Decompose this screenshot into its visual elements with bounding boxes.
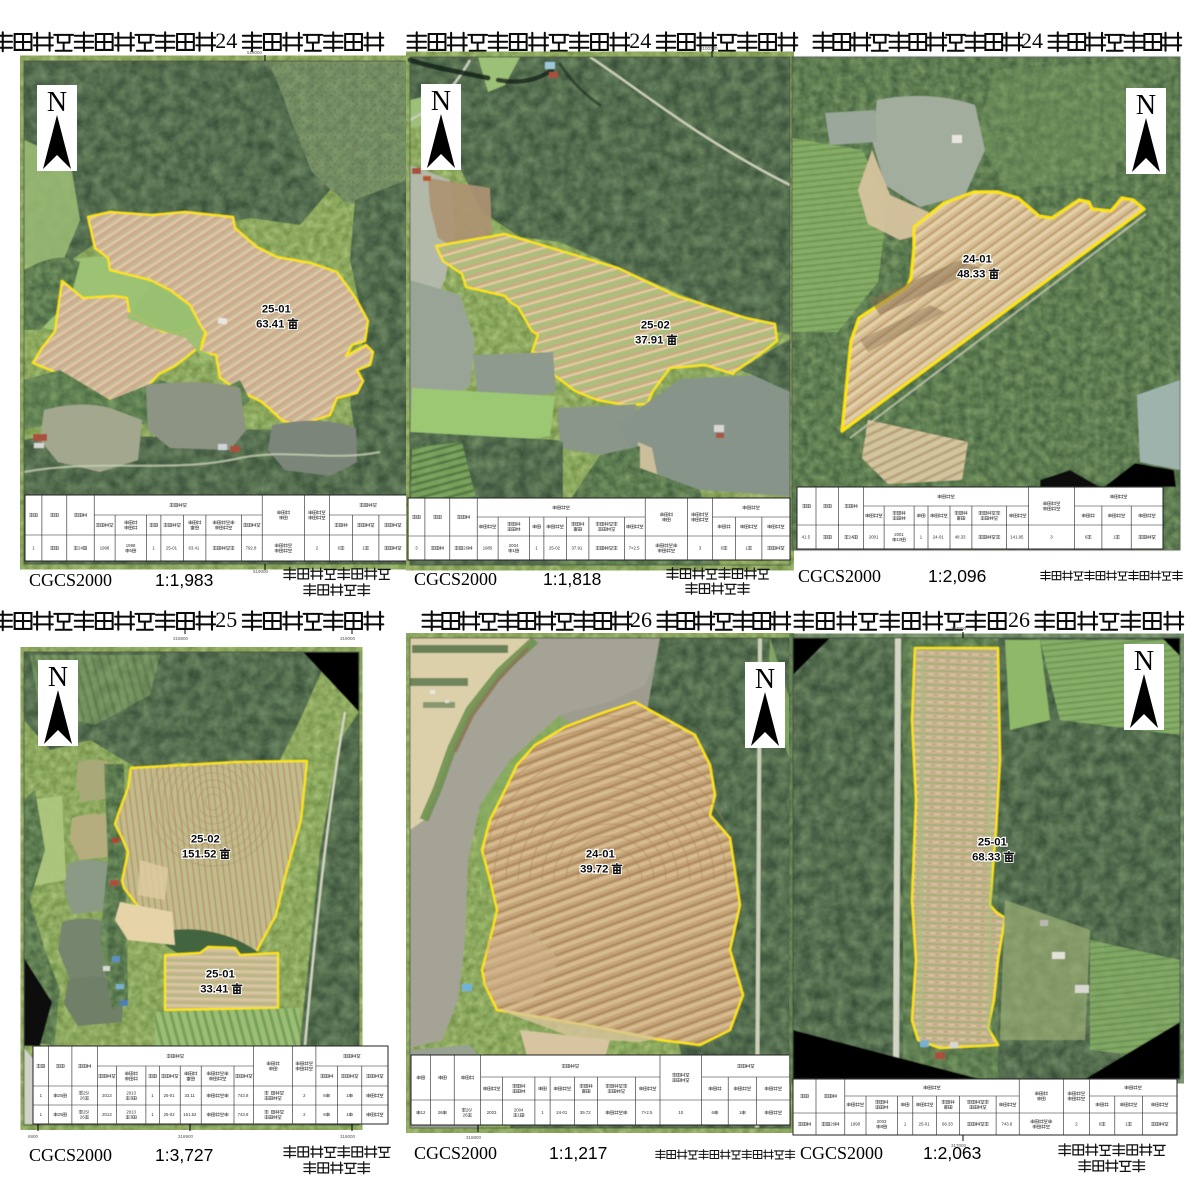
svg-text:26: 26 — [1008, 607, 1030, 632]
svg-text:1998: 1998 — [100, 545, 110, 550]
svg-text:63.41: 63.41 — [189, 545, 200, 550]
svg-text:2003: 2003 — [487, 1110, 497, 1115]
svg-text:6900: 6900 — [28, 1134, 39, 1139]
svg-text:33.11: 33.11 — [185, 1093, 196, 1098]
svg-text:2013: 2013 — [102, 1112, 112, 1117]
svg-text:26: 26 — [830, 1121, 835, 1126]
svg-text:24-01: 24-01 — [586, 848, 615, 860]
svg-text:25-01: 25-01 — [164, 1093, 176, 1098]
svg-text:33.41: 33.41 — [200, 983, 228, 995]
svg-text:24-01: 24-01 — [933, 534, 945, 539]
svg-text:743.8: 743.8 — [238, 1112, 249, 1117]
svg-text:10: 10 — [897, 537, 902, 542]
svg-text:CGCS2000: CGCS2000 — [800, 1143, 883, 1163]
svg-text:743.8: 743.8 — [1002, 1121, 1013, 1126]
svg-text:39.72: 39.72 — [580, 863, 608, 875]
svg-text:25-01: 25-01 — [978, 836, 1007, 848]
svg-text:CGCS2000: CGCS2000 — [29, 1145, 112, 1165]
svg-text:318900: 318900 — [178, 1134, 194, 1139]
svg-text:2013: 2013 — [102, 1093, 112, 1098]
svg-text:25-02: 25-02 — [164, 1112, 176, 1117]
svg-text:CGCS2000: CGCS2000 — [29, 570, 112, 590]
svg-text:CGCS2000: CGCS2000 — [414, 1143, 497, 1163]
svg-text:25: 25 — [58, 1112, 63, 1117]
svg-text:26: 26 — [463, 545, 468, 550]
svg-text:25-02: 25-02 — [191, 833, 220, 845]
svg-text:25-02: 25-02 — [641, 319, 670, 331]
svg-text:1985: 1985 — [483, 545, 493, 550]
svg-text:319000: 319000 — [340, 636, 356, 641]
svg-text:37.91: 37.91 — [635, 334, 663, 346]
svg-text:25-01: 25-01 — [262, 303, 291, 315]
svg-text:743.8: 743.8 — [238, 1093, 249, 1098]
svg-text:37.91: 37.91 — [572, 545, 583, 550]
svg-text:151.52: 151.52 — [182, 848, 217, 860]
svg-text:12: 12 — [421, 1110, 426, 1115]
svg-text:2001: 2001 — [869, 534, 879, 539]
svg-text:24: 24 — [215, 28, 237, 53]
svg-text:CGCS2000: CGCS2000 — [798, 566, 881, 586]
svg-text:141.95: 141.95 — [1010, 534, 1024, 539]
svg-text:24: 24 — [629, 28, 651, 53]
svg-text:26: 26 — [80, 1115, 85, 1120]
svg-text:2100300: 2100300 — [700, 46, 718, 51]
svg-text:26: 26 — [630, 607, 652, 632]
svg-text:319000: 319000 — [340, 1134, 356, 1139]
svg-text:68.33: 68.33 — [972, 851, 1000, 863]
svg-text:26: 26 — [80, 1096, 85, 1101]
svg-text:10: 10 — [678, 1110, 683, 1115]
svg-text:25-01: 25-01 — [919, 1121, 931, 1126]
svg-text:39.72: 39.72 — [580, 1110, 591, 1115]
svg-text:24: 24 — [1021, 28, 1043, 53]
svg-text:24: 24 — [78, 545, 83, 550]
svg-text:7×2.5: 7×2.5 — [629, 545, 640, 550]
svg-text:24: 24 — [849, 534, 854, 539]
svg-text:1:2,063: 1:2,063 — [923, 1143, 981, 1163]
svg-text:25-02: 25-02 — [549, 545, 561, 550]
svg-text:151.52: 151.52 — [183, 1112, 197, 1117]
svg-text:1998: 1998 — [851, 1121, 861, 1126]
svg-text:48.33: 48.33 — [955, 534, 966, 539]
svg-text:1:2,096: 1:2,096 — [928, 566, 986, 586]
svg-text:318800: 318800 — [466, 1135, 482, 1140]
svg-text:25-01: 25-01 — [206, 968, 235, 980]
svg-text:41.5: 41.5 — [802, 534, 811, 539]
svg-text:519000: 519000 — [253, 569, 269, 574]
svg-text:1:1,983: 1:1,983 — [155, 570, 213, 590]
svg-text:317000: 317000 — [951, 626, 967, 631]
svg-text:48.33: 48.33 — [957, 268, 985, 280]
svg-text:24-01: 24-01 — [963, 253, 992, 265]
svg-text:25: 25 — [58, 1093, 63, 1098]
svg-text:24-01: 24-01 — [556, 1110, 568, 1115]
svg-text:1:1,217: 1:1,217 — [549, 1143, 607, 1163]
svg-text:1:1,818: 1:1,818 — [543, 569, 601, 589]
svg-text:68.33: 68.33 — [942, 1121, 953, 1126]
svg-text:7×2.5: 7×2.5 — [642, 1110, 653, 1115]
svg-text:318800: 318800 — [173, 636, 189, 641]
svg-text:1:3,727: 1:3,727 — [155, 1145, 213, 1165]
svg-text:792.8: 792.8 — [246, 545, 257, 550]
svg-text:26: 26 — [438, 1110, 443, 1115]
svg-text:CGCS2000: CGCS2000 — [414, 569, 497, 589]
svg-text:25-01: 25-01 — [166, 545, 178, 550]
svg-text:519000: 519000 — [247, 50, 263, 55]
svg-text:26: 26 — [463, 1113, 468, 1118]
svg-text:63.41: 63.41 — [256, 318, 284, 330]
svg-text:25: 25 — [215, 607, 237, 632]
